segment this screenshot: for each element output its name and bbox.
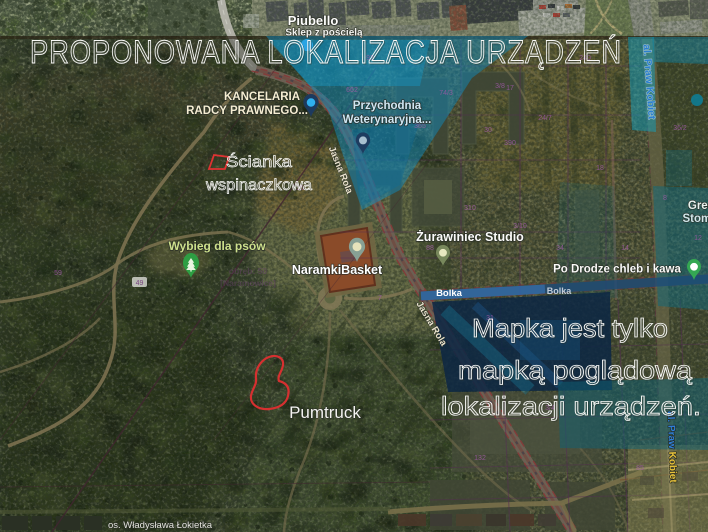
svg-text:Gree: Gree <box>688 200 708 212</box>
svg-text:310: 310 <box>464 205 476 212</box>
svg-text:KANCELARIA: KANCELARIA <box>224 91 300 103</box>
svg-text:[Naramowice]: [Naramowice] <box>220 278 276 288</box>
svg-text:390: 390 <box>504 140 516 147</box>
svg-text:36/2: 36/2 <box>673 125 687 132</box>
svg-text:59: 59 <box>54 270 62 277</box>
svg-text:74/3: 74/3 <box>439 90 453 97</box>
svg-text:3/8: 3/8 <box>495 83 505 90</box>
svg-text:49: 49 <box>136 280 144 287</box>
svg-text:obręb: 50: obręb: 50 <box>229 266 268 276</box>
svg-text:Weterynaryjna...: Weterynaryjna... <box>343 114 432 126</box>
svg-text:Mapka jest tylko: Mapka jest tylko <box>472 313 668 343</box>
svg-text:18: 18 <box>596 165 604 172</box>
svg-text:Pumtruck: Pumtruck <box>289 403 361 422</box>
svg-text:Piubello: Piubello <box>288 13 339 28</box>
svg-text:7: 7 <box>378 295 382 302</box>
svg-text:12: 12 <box>694 235 702 242</box>
svg-text:Ścianka: Ścianka <box>226 152 292 171</box>
svg-text:34: 34 <box>556 245 564 252</box>
svg-text:3/10: 3/10 <box>513 223 527 230</box>
svg-text:Stomat: Stomat <box>683 213 708 225</box>
svg-text:os. Władysława Łokietka: os. Władysława Łokietka <box>108 520 213 531</box>
svg-text:662: 662 <box>346 87 358 94</box>
svg-text:RADCY PRAWNEGO...: RADCY PRAWNEGO... <box>186 105 308 117</box>
svg-text:Bolka: Bolka <box>436 288 463 299</box>
svg-text:85: 85 <box>636 465 644 472</box>
svg-text:8: 8 <box>663 195 667 202</box>
svg-text:PROPONOWANA LOKALIZACJA URZĄDZ: PROPONOWANA LOKALIZACJA URZĄDZEŃ <box>30 34 622 70</box>
svg-text:Po Drodze chleb i kawa: Po Drodze chleb i kawa <box>553 264 681 276</box>
svg-text:Przychodnia: Przychodnia <box>353 100 422 112</box>
svg-text:30: 30 <box>484 127 492 134</box>
svg-text:24/7: 24/7 <box>538 115 552 122</box>
svg-text:Wybieg dla psów: Wybieg dla psów <box>168 239 266 253</box>
svg-text:Żurawiniec Studio: Żurawiniec Studio <box>416 229 524 244</box>
svg-text:wspinaczkowa: wspinaczkowa <box>205 177 312 194</box>
svg-text:lokalizacji urządzeń.: lokalizacji urządzeń. <box>441 391 701 421</box>
svg-text:Bolka: Bolka <box>547 286 573 296</box>
svg-text:14: 14 <box>621 245 629 252</box>
svg-text:88: 88 <box>426 245 434 252</box>
svg-text:mapką poglądową: mapką poglądową <box>458 355 693 385</box>
svg-text:132: 132 <box>474 455 486 462</box>
svg-text:NaramkiBasket: NaramkiBasket <box>292 263 383 277</box>
svg-text:17: 17 <box>506 85 514 92</box>
